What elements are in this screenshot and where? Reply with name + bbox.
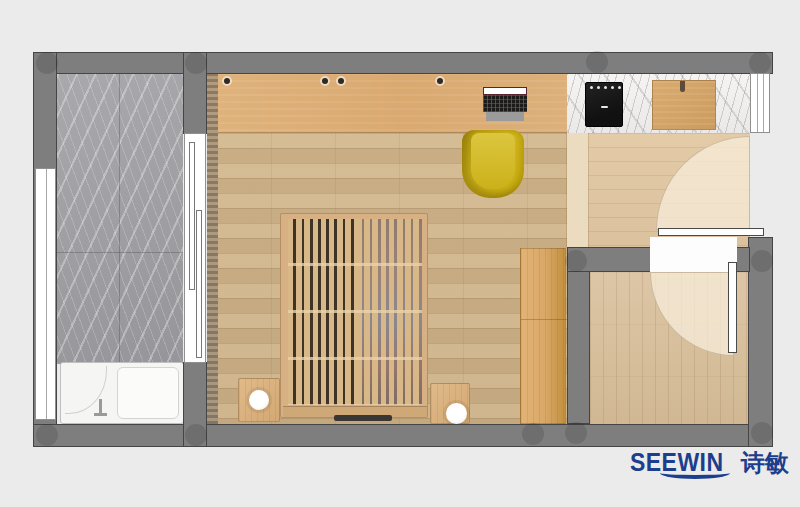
bathroom-floor-seam-horizontal [57, 252, 183, 253]
cabinet-knob [224, 78, 230, 84]
window-left-mullion [46, 169, 47, 419]
window-right-mullion [757, 74, 758, 132]
board-handle [680, 81, 685, 92]
window-right-mullion [763, 74, 764, 132]
cooktop-knob-dot [604, 86, 607, 89]
faucet-handle [94, 413, 107, 416]
brand-cjk-text: 诗敏 [741, 451, 789, 475]
column [565, 250, 587, 272]
wall-top [33, 52, 773, 74]
column [185, 52, 207, 74]
lamp-left [249, 390, 269, 410]
wardrobe-seam [521, 319, 567, 320]
cooktop-knob-dot [611, 86, 614, 89]
laptop-keyboard [483, 95, 527, 112]
window-right-top [750, 73, 770, 133]
cooktop-knob-dot [597, 86, 600, 89]
column [749, 52, 771, 74]
wardrobe [520, 248, 566, 424]
column [185, 424, 207, 446]
cooktop-knob-dot [618, 86, 621, 89]
cooktop-indicator [601, 106, 608, 108]
lamp-right [446, 403, 467, 424]
cooktop [585, 82, 623, 127]
column [36, 424, 58, 446]
bed-step-mat [334, 415, 392, 421]
column [586, 51, 608, 73]
floor-plan: SEEWIN 诗敏 [0, 0, 800, 507]
cabinet-knob [338, 78, 344, 84]
column [522, 423, 544, 445]
window-left [35, 168, 56, 420]
laptop [483, 87, 527, 121]
desk-chair [462, 130, 524, 198]
column [751, 250, 773, 272]
balcony-door-gap [650, 237, 737, 272]
bed [280, 213, 428, 418]
bathroom-floor-seam-vertical [119, 74, 120, 364]
entry-threshold [566, 133, 589, 247]
wall-balcony-left [567, 247, 590, 424]
chair-seat [471, 133, 515, 189]
column [565, 422, 587, 444]
bathtub-basin [117, 367, 179, 419]
sliding-door-panel [196, 210, 202, 358]
laptop-palmrest [486, 112, 524, 121]
bed-support-rails [288, 219, 422, 405]
balcony-door [728, 262, 737, 353]
wall-bottom [33, 424, 773, 447]
curtain-strip [207, 73, 218, 424]
sliding-door-panel [189, 142, 195, 290]
cooktop-knob-dot [590, 86, 593, 89]
bathroom-floor [57, 74, 183, 364]
bathroom-sliding-door [184, 133, 206, 363]
cabinet-knob [322, 78, 328, 84]
laptop-screen [483, 87, 527, 95]
bathtub-unit [60, 362, 184, 424]
cabinet-knob [437, 78, 443, 84]
column [751, 422, 773, 444]
cutting-board [652, 80, 716, 130]
entry-door [658, 228, 764, 236]
brand-swoosh [660, 467, 730, 479]
column [36, 52, 58, 74]
